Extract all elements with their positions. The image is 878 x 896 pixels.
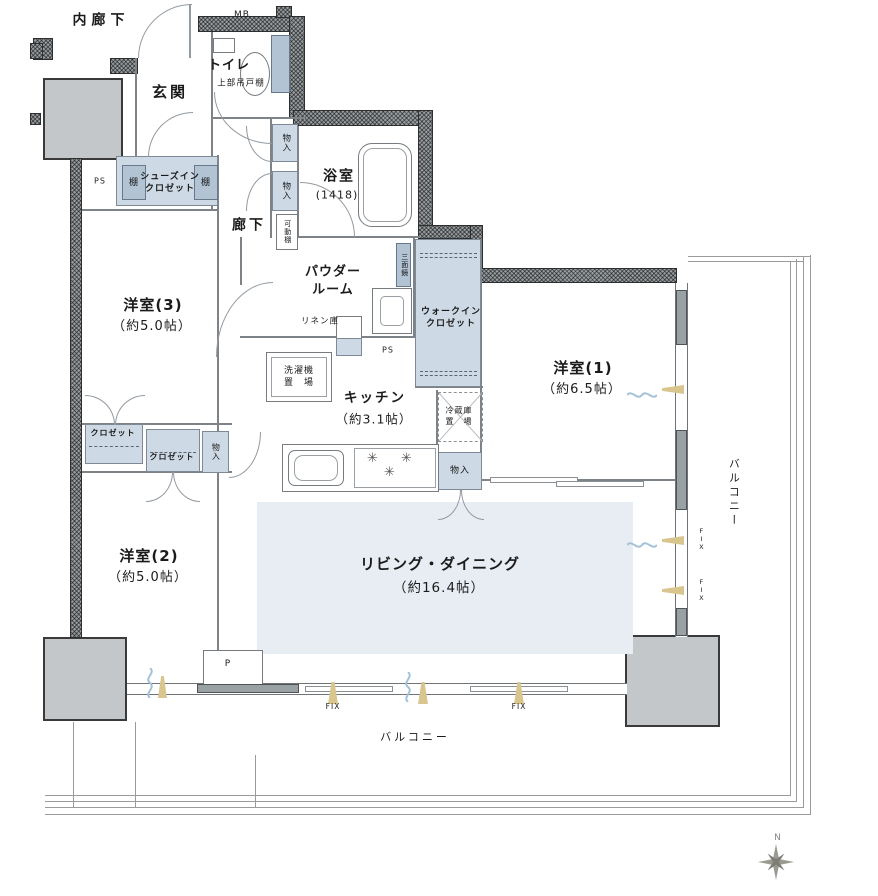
fix-window-bottom-1 — [305, 686, 393, 692]
label-room1: 洋室(1) — [553, 358, 612, 378]
label-shelf-right: 棚 — [201, 177, 211, 189]
wall-left-outer — [70, 158, 82, 638]
bathtub-inner — [363, 148, 407, 222]
balcony-rail-top-tie-1 — [688, 256, 811, 257]
stove: ✳ ✳ ✳ — [354, 448, 436, 488]
label-mb: MB — [234, 9, 250, 21]
label-balcony-bottom: バルコニー — [380, 731, 450, 746]
label-kitchen-size: （約3.1帖） — [336, 412, 413, 429]
sliding-door-room1-b — [556, 481, 644, 487]
wall-room1-top — [470, 268, 677, 283]
balcony-partition-1 — [73, 722, 74, 808]
label-room3: 洋室(3) — [123, 295, 182, 315]
label-fridge: 冷蔵庫 置 場 — [446, 406, 473, 428]
swing-mark-bottom-1 — [144, 668, 156, 702]
wic-hanger-rail-bottom-2 — [420, 375, 477, 376]
compass-icon — [758, 844, 794, 884]
wall-stub-left-b — [30, 113, 41, 125]
wic-hanger-rail-bottom — [420, 371, 477, 372]
label-fix-bottom-2: FIX — [512, 702, 527, 712]
column-bottom-left — [43, 637, 127, 721]
burner-icon: ✳ — [384, 465, 395, 480]
wic-hanger-rail-top-2 — [420, 257, 477, 258]
balcony-rail-top-tie-2 — [688, 261, 804, 262]
label-washer: 洗濯機 置 場 — [284, 365, 314, 389]
sash-right-mid — [676, 430, 687, 510]
label-room3-size: （約5.0帖） — [112, 318, 192, 336]
entrance-door-arc — [138, 4, 192, 58]
sash-right-top — [676, 290, 687, 345]
burner-icon: ✳ — [367, 451, 378, 466]
vanity-bowl — [380, 296, 404, 326]
wall-hall-left — [217, 155, 219, 688]
burner-icon: ✳ — [401, 451, 412, 466]
entrance-door-leaf — [189, 4, 191, 58]
balcony-step — [203, 650, 263, 684]
label-toilet-shelf: 上部吊戸棚 — [217, 78, 265, 89]
label-fix-bottom-1: FIX — [326, 702, 341, 712]
label-living: リビング・ダイニング — [360, 554, 520, 574]
label-fix-right-1: FIX — [697, 527, 706, 551]
label-storage-hall-2: 物入 — [279, 182, 290, 201]
label-shelf-left: 棚 — [129, 177, 139, 189]
wic-hanger-rail-top — [420, 253, 477, 254]
kitchen-sink-inner — [294, 455, 338, 481]
wall-bath-top — [293, 110, 433, 126]
column-bottom-right — [625, 635, 720, 727]
swing-mark-right-1 — [627, 389, 661, 401]
toilet-hand-wash — [213, 38, 235, 53]
label-movable-shelf: 可動棚 — [282, 220, 291, 244]
wall-genkan-left — [135, 58, 137, 156]
wall-room3-top — [82, 209, 218, 211]
balcony-partition-2 — [135, 722, 136, 808]
label-fix-right-2: FIX — [697, 578, 706, 602]
floor-plan: ✳ ✳ ✳ 内廊下 MB 玄関 トイレ 上部吊戸棚 シューズイン クロゼット 棚… — [0, 0, 878, 896]
sash-right-bottom — [676, 608, 687, 636]
wall-toilet-right — [289, 16, 305, 118]
label-balcony-right: バルコニー — [726, 458, 741, 528]
wall-powder-left — [240, 237, 242, 285]
balcony-partition-3 — [255, 755, 256, 808]
label-mirror: 三面鏡 — [399, 253, 408, 277]
label-room2-size: （約5.0帖） — [108, 569, 188, 587]
label-storage-kitchen: 物入 — [450, 465, 470, 477]
wall-stub-left-a — [30, 43, 43, 59]
label-toilet: トイレ — [208, 57, 250, 75]
label-p-mark: P — [225, 658, 231, 670]
label-north: N — [774, 832, 782, 844]
closet-b-box — [146, 429, 200, 472]
genkan-hall-door-arc — [148, 112, 193, 157]
label-powder-room: パウダー ルーム — [305, 263, 361, 298]
label-living-size: （約16.4帖） — [393, 579, 485, 597]
label-bathroom-size: (1418) — [316, 189, 359, 204]
storage-hall-2-door-arc — [246, 173, 272, 211]
storage-hall-1-door-arc — [246, 126, 272, 162]
label-linen: リネン庫 — [301, 316, 339, 327]
linen-box-fill — [336, 338, 362, 356]
closet-a-rail — [89, 446, 139, 447]
label-kitchen: キッチン — [344, 389, 406, 407]
label-corridor: 廊下 — [232, 217, 266, 236]
swing-mark-bottom-2 — [402, 672, 414, 706]
label-inner-corridor: 内廊下 — [73, 12, 130, 31]
label-bathroom: 浴室 — [323, 168, 355, 187]
label-room2: 洋室(2) — [119, 546, 178, 566]
label-entrance: 玄関 — [152, 82, 188, 102]
label-closet-a: クロゼット — [91, 429, 136, 440]
label-room1-size: （約6.5帖） — [542, 381, 622, 399]
label-shoes-closet: シューズイン クロゼット — [140, 171, 200, 195]
swing-mark-right-2 — [627, 539, 661, 551]
label-storage-hall-1: 物入 — [279, 134, 290, 153]
column-top-left — [43, 78, 123, 160]
label-ps-left: PS — [94, 177, 106, 188]
label-ps-mid: PS — [382, 346, 394, 357]
sliding-window-bottom — [197, 684, 299, 693]
wall-entry-left — [110, 58, 138, 74]
toilet-tank — [271, 35, 290, 93]
label-storage-room2: 物入 — [210, 443, 221, 461]
label-walk-in-closet: ウォークイン クロゼット — [421, 306, 481, 330]
label-closet-b: クロゼット — [150, 453, 195, 464]
wall-bath-right — [418, 110, 433, 239]
